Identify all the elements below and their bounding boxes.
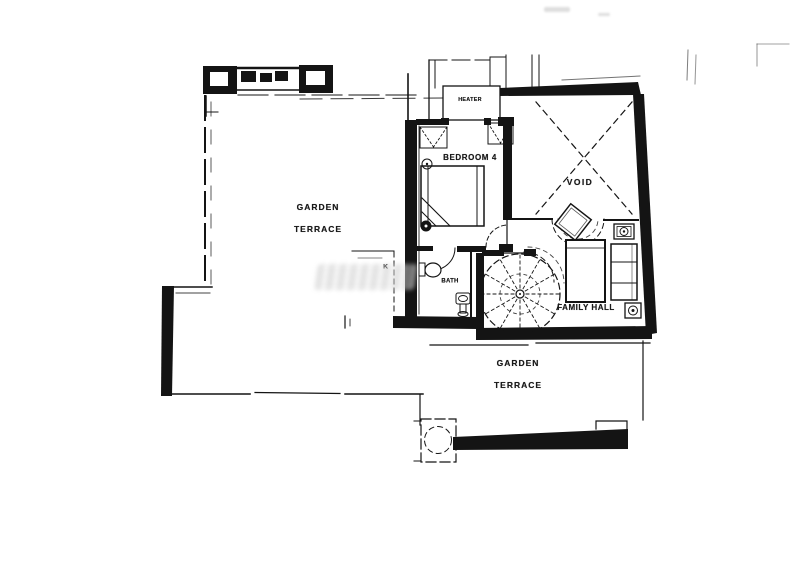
room-label-void: VOID bbox=[555, 177, 605, 188]
garden-terrace-lower-line1: GARDEN bbox=[497, 358, 540, 368]
garden-terrace-lower-line2: TERRACE bbox=[494, 380, 542, 390]
scan-speck bbox=[544, 7, 570, 12]
scan-watermark-smudge bbox=[314, 264, 418, 290]
floor-plan: GARDEN TERRACE BEDROOM 4 VOID HEATER BAT… bbox=[0, 0, 800, 566]
room-label-garden-terrace-upper: GARDEN TERRACE bbox=[268, 202, 368, 235]
room-label-bath: BATH bbox=[437, 277, 464, 285]
cabinet-icon bbox=[611, 244, 637, 300]
table-icon bbox=[566, 240, 605, 302]
spiral-staircase-icon bbox=[480, 247, 564, 334]
void-door-leaf bbox=[552, 204, 604, 245]
void-cross-lines bbox=[536, 102, 632, 214]
toilet-icon bbox=[419, 263, 441, 277]
terrace-west-wall bbox=[161, 96, 212, 396]
room-label-bedroom-4: BEDROOM 4 bbox=[430, 153, 510, 163]
bed-icon bbox=[421, 159, 485, 232]
speaker-icon-top bbox=[614, 224, 634, 239]
sink-icon bbox=[456, 293, 470, 317]
speaker-icon-label bbox=[625, 303, 641, 318]
room-label-garden-terrace-lower: GARDEN TERRACE bbox=[468, 358, 568, 391]
room-label-family-hall: FAMILY HALL bbox=[548, 303, 624, 313]
closet-vent-icons bbox=[420, 123, 513, 148]
garden-terrace-upper-line1: GARDEN bbox=[297, 202, 340, 212]
garden-terrace-upper-line2: TERRACE bbox=[294, 224, 342, 234]
room-label-heater: HEATER bbox=[452, 96, 487, 103]
scan-artifacts bbox=[687, 44, 789, 84]
parapet-wall bbox=[203, 65, 443, 116]
stair-walls bbox=[430, 249, 652, 345]
terrace-south-wall bbox=[168, 393, 423, 426]
scan-speck bbox=[598, 13, 610, 16]
